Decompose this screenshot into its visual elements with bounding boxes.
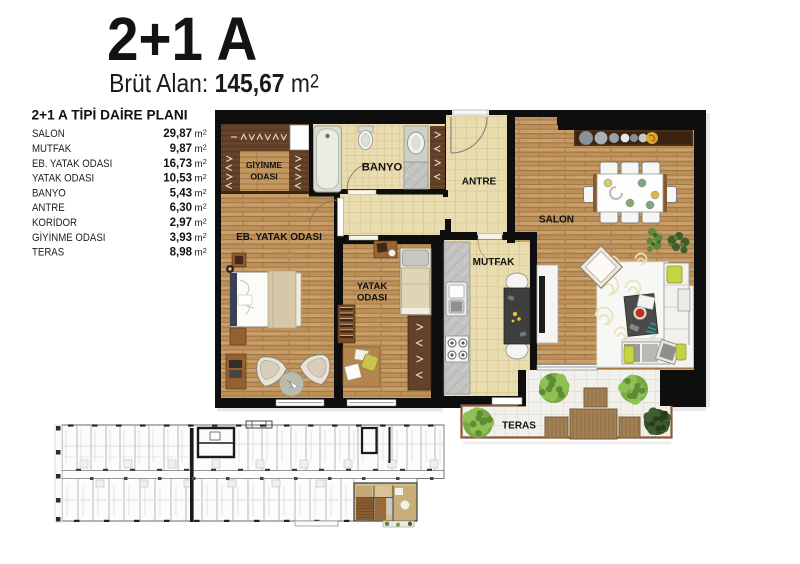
svg-text:MUTFAK: MUTFAK xyxy=(32,142,71,155)
svg-text:5,43: 5,43 xyxy=(170,187,192,199)
svg-text:2+1 A TİPİ DAİRE PLANI: 2+1 A TİPİ DAİRE PLANI xyxy=(32,108,188,123)
svg-text:6,30: 6,30 xyxy=(170,202,192,214)
svg-text:2,97: 2,97 xyxy=(170,217,192,229)
svg-text:TERAS: TERAS xyxy=(32,246,64,259)
svg-text:GİYİNME ODASI: GİYİNME ODASI xyxy=(32,230,105,244)
svg-text:TERAS: TERAS xyxy=(502,421,536,432)
svg-text:9,87: 9,87 xyxy=(170,143,192,155)
svg-text:Brüt Alan: 145,67 m2: Brüt Alan: 145,67 m2 xyxy=(109,70,319,99)
svg-text:2+1 A: 2+1 A xyxy=(107,5,257,74)
svg-text:SALON: SALON xyxy=(539,215,574,226)
svg-text:BANYO: BANYO xyxy=(362,162,403,174)
svg-text:EB. YATAK ODASI: EB. YATAK ODASI xyxy=(236,232,322,243)
svg-text:8,98: 8,98 xyxy=(170,247,193,259)
svg-text:EB. YATAK ODASI: EB. YATAK ODASI xyxy=(32,157,112,170)
svg-text:ODASI: ODASI xyxy=(250,172,277,182)
svg-text:MUTFAK: MUTFAK xyxy=(473,257,515,268)
svg-text:SALON: SALON xyxy=(32,127,65,140)
svg-text:ANTRE: ANTRE xyxy=(32,201,65,214)
svg-text:10,53: 10,53 xyxy=(163,173,192,185)
svg-text:29,87: 29,87 xyxy=(163,128,192,140)
svg-text:KORİDOR: KORİDOR xyxy=(32,215,77,229)
svg-text:YATAK ODASI: YATAK ODASI xyxy=(32,172,94,185)
svg-text:3,93: 3,93 xyxy=(170,232,192,244)
svg-text:ANTRE: ANTRE xyxy=(462,177,497,188)
svg-text:ODASI: ODASI xyxy=(357,293,387,304)
svg-text:16,73: 16,73 xyxy=(163,158,192,170)
svg-text:BANYO: BANYO xyxy=(32,187,66,200)
svg-text:GİYİNME: GİYİNME xyxy=(246,160,283,170)
svg-text:YATAK: YATAK xyxy=(357,281,388,292)
